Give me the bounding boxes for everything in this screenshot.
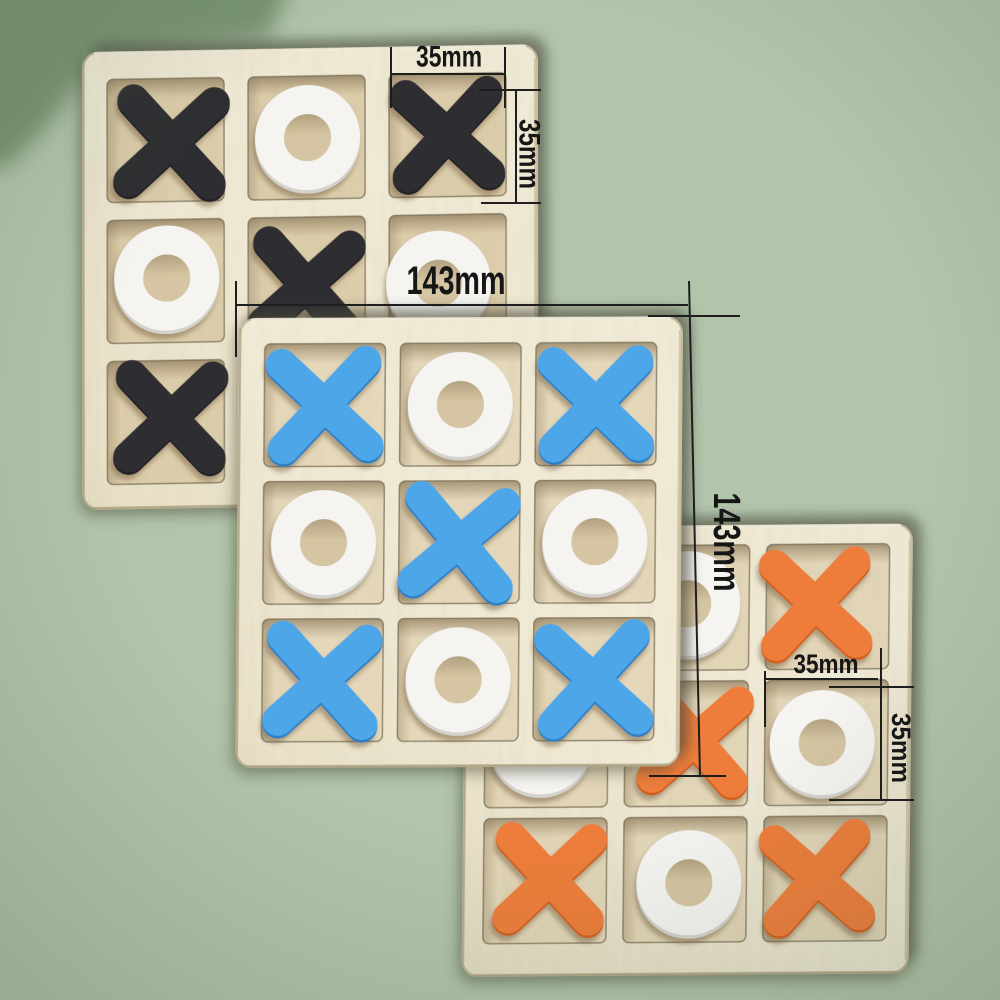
svg-text:35mm: 35mm xyxy=(886,713,916,783)
svg-text:143mm: 143mm xyxy=(705,493,747,592)
svg-text:35mm: 35mm xyxy=(416,41,482,74)
svg-text:35mm: 35mm xyxy=(513,119,546,189)
svg-text:143mm: 143mm xyxy=(407,259,506,303)
svg-text:35mm: 35mm xyxy=(794,649,859,679)
